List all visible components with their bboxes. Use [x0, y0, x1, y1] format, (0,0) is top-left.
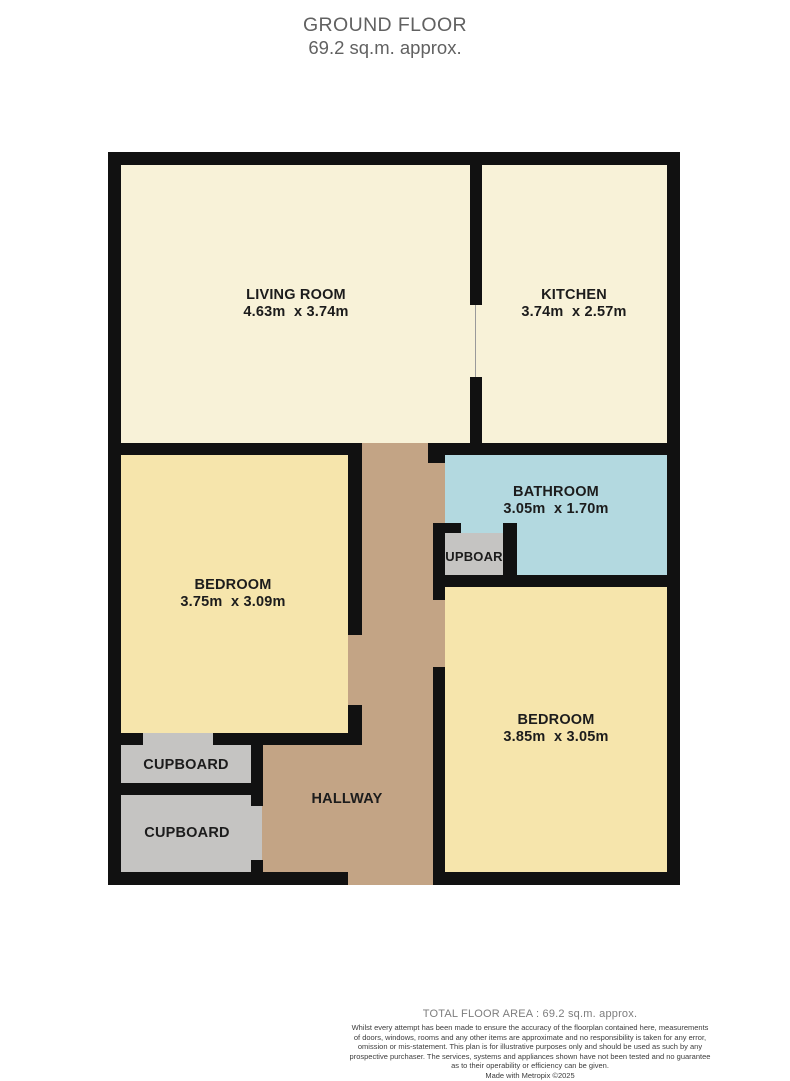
disclaimer-line: of doors, windows, rooms and any other i…	[330, 1033, 730, 1043]
bedroom-left-dims: 3.75m x 3.09m	[133, 594, 333, 611]
bedroom-right-name: BEDROOM	[456, 712, 656, 729]
bathroom-top-left-stub	[428, 443, 445, 463]
living-kitchen-wall-upper	[470, 165, 482, 305]
hallway-label: HALLWAY	[277, 791, 417, 808]
kitchen-dims: 3.74m x 2.57m	[474, 304, 674, 321]
bedroom-left-right-wall-upper	[348, 443, 362, 635]
bathroom-name: BATHROOM	[456, 484, 656, 501]
bathroom-bottom-wall	[433, 575, 667, 587]
living-kitchen-wall-lower	[470, 377, 482, 443]
hallway-bedroom-right-door-opening	[433, 600, 445, 667]
total-floor-area: TOTAL FLOOR AREA : 69.2 sq.m. approx.	[330, 1008, 730, 1020]
bathroom-dims: 3.05m x 1.70m	[456, 501, 656, 518]
bedroom-left-bottom-wall-a	[108, 733, 143, 745]
kitchen-bottom-wall	[445, 443, 667, 455]
living-room-label: LIVING ROOM 4.63m x 3.74m	[196, 287, 396, 320]
disclaimer-line: prospective purchaser. The services, sys…	[330, 1052, 730, 1062]
bedroom-right-left-wall-lower	[433, 667, 445, 885]
bathroom-label: BATHROOM 3.05m x 1.70m	[456, 484, 656, 517]
cupboards-divider-wall	[108, 783, 263, 795]
cupboard-upper-label: CUPBOARD	[111, 757, 261, 774]
bedroom-right-label: BEDROOM 3.85m x 3.05m	[456, 712, 656, 745]
plan-title-block: GROUND FLOOR 69.2 sq.m. approx.	[185, 14, 585, 59]
bathroom-cupboard-right-wall	[503, 523, 517, 577]
kitchen-label: KITCHEN 3.74m x 2.57m	[474, 287, 674, 320]
entrance-door-opening	[348, 872, 433, 885]
outer-wall-bottom-left	[108, 872, 348, 885]
living-room-bottom-wall	[121, 443, 362, 455]
metropix-credit: Made with Metropix ©2025	[330, 1071, 730, 1081]
hallway-floor-top-door	[362, 443, 428, 455]
plan-title: GROUND FLOOR	[185, 14, 585, 37]
bedroom-right-dims: 3.85m x 3.05m	[456, 729, 656, 746]
outer-wall-right	[667, 152, 680, 885]
floor-plan: GROUND FLOOR 69.2 sq.m. approx. LIVING R…	[0, 0, 790, 1080]
bathroom-cupboard-opening	[461, 523, 503, 533]
living-room-dims: 4.63m x 3.74m	[196, 304, 396, 321]
hallway-floor-column	[362, 455, 433, 745]
outer-wall-top	[108, 152, 680, 165]
outer-wall-bottom-right	[433, 872, 680, 885]
disclaimer-line: Whilst every attempt has been made to en…	[330, 1023, 730, 1033]
hallway-bedroom-left-door-opening	[348, 635, 362, 705]
disclaimer-line: omission or mis-statement. This plan is …	[330, 1042, 730, 1052]
bathroom-cupboard-top-stub	[445, 523, 461, 533]
outer-wall-left	[108, 152, 121, 885]
living-room-name: LIVING ROOM	[196, 287, 396, 304]
plan-subtitle: 69.2 sq.m. approx.	[185, 37, 585, 59]
kitchen-name: KITCHEN	[474, 287, 674, 304]
cupboard-lower-right-stub-top	[251, 795, 263, 806]
cupboard-lower-right-stub-bottom	[251, 860, 263, 872]
bedroom-left-label: BEDROOM 3.75m x 3.09m	[133, 577, 333, 610]
cupboard-lower-label: CUPBOARD	[112, 825, 262, 842]
cupboard-upper-door-opening	[143, 733, 213, 745]
disclaimer-line: as to their operability or efficiency ca…	[330, 1061, 730, 1071]
hallway-bathroom-door-opening	[433, 463, 445, 523]
bathroom-left-wall-upper	[433, 523, 445, 600]
bedroom-left-name: BEDROOM	[133, 577, 333, 594]
footer: TOTAL FLOOR AREA : 69.2 sq.m. approx. Wh…	[330, 1008, 730, 1081]
hallway-floor-lower	[262, 745, 433, 872]
bedroom-left-bottom-wall-b	[213, 733, 362, 745]
